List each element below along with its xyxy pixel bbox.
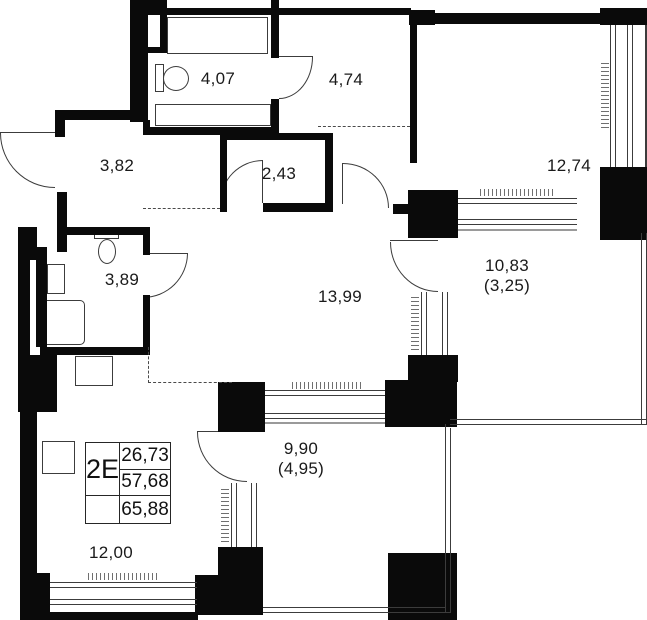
window-line: [236, 483, 237, 547]
window-line: [265, 395, 385, 396]
floor-plan: 4,07 4,74 12,74 3,82 2,43 3,89 13,99 10,…: [0, 0, 647, 620]
window-line: [615, 25, 616, 167]
room-label-entry-hall: 3,82: [100, 156, 134, 176]
wall-segment: [325, 133, 333, 212]
window-line: [447, 292, 448, 355]
window-line: [265, 413, 385, 414]
wall-segment: [385, 380, 457, 427]
wall-segment: [410, 13, 417, 163]
toilet-bowl: [163, 66, 189, 91]
door-swing-arc: [279, 57, 313, 99]
wall-segment: [143, 295, 150, 355]
loggia-glazing-line: [450, 428, 451, 613]
wall-segment: [20, 412, 37, 620]
wall-segment: [57, 227, 150, 235]
room-label-bathroom: 4,07: [201, 69, 235, 89]
radiator-hatch: [221, 489, 229, 545]
loggia-small-secondary: (4,95): [278, 459, 324, 478]
window-line: [426, 292, 427, 355]
window-sill-line: [265, 422, 385, 424]
loggia-glazing-line: [263, 612, 451, 613]
window-line: [458, 203, 577, 204]
room-label-kitchen-living: 13,99: [318, 287, 362, 307]
window-line: [50, 587, 197, 588]
wall-segment: [143, 120, 150, 135]
radiator-hatch: [480, 189, 553, 196]
wall-segment: [37, 612, 198, 620]
toilet-tank: [155, 64, 164, 92]
radiator-hatch: [411, 297, 419, 352]
wall-segment: [150, 8, 411, 15]
window-line: [632, 25, 633, 167]
wall-segment: [195, 575, 263, 615]
wall-segment: [408, 190, 458, 238]
zone-boundary-dashed: [318, 126, 410, 127]
radiator-hatch: [292, 382, 362, 389]
wall-segment: [36, 247, 47, 347]
door-swing-arc: [0, 133, 55, 188]
zone-boundary-dashed: [148, 382, 232, 383]
door-swing-arc: [197, 432, 247, 482]
loggia-large-area: 10,83: [485, 256, 529, 275]
door-leaf: [390, 240, 438, 241]
wall-segment: [143, 235, 150, 255]
wall-segment: [600, 167, 647, 240]
floor-area-value: 57,68: [119, 470, 170, 497]
room-label-living-room: 12,00: [89, 543, 133, 563]
wall-segment: [130, 0, 167, 15]
info-box-empty-cell: [86, 496, 119, 523]
wall-segment: [600, 8, 647, 25]
window-line: [265, 418, 385, 419]
radiator-hatch: [88, 573, 158, 580]
window-line: [231, 483, 232, 547]
door-leaf: [342, 163, 343, 204]
wall-segment: [143, 127, 279, 135]
apartment-info-box: 2Е 26,73 57,68 65,88: [85, 442, 171, 524]
window-line: [442, 292, 443, 355]
wall-segment: [55, 110, 132, 120]
window-sill-line: [458, 229, 577, 231]
room-label-corridor: 2,43: [262, 164, 296, 184]
loggia-glazing-line: [641, 233, 642, 424]
room-label-wc: 3,89: [105, 270, 139, 290]
wall-segment: [57, 192, 67, 252]
wall-segment: [218, 547, 263, 577]
loggia-glazing-line: [450, 419, 646, 420]
window-line: [265, 390, 385, 391]
window-line: [627, 25, 628, 167]
wall-segment: [160, 15, 167, 52]
wc-toilet-bowl: [98, 239, 116, 264]
loggia-glazing-line: [450, 424, 647, 425]
wall-segment: [18, 260, 30, 412]
radiator-hatch: [601, 63, 609, 131]
room-label-bedroom: 12,74: [547, 156, 591, 176]
wall-segment: [263, 203, 333, 212]
window-line: [458, 224, 577, 225]
room-label-loggia-large: 10,83(3,25): [484, 256, 530, 296]
window-line: [610, 25, 611, 167]
loggia-glazing-line: [263, 607, 446, 608]
bathtub: [167, 17, 268, 54]
wall-segment: [40, 347, 150, 355]
door-swing-arc: [143, 253, 188, 298]
loggia-large-secondary: (3,25): [484, 276, 530, 295]
wall-segment: [220, 133, 227, 212]
zone-boundary-dashed: [143, 208, 220, 209]
door-leaf: [279, 56, 313, 57]
wall-segment: [388, 553, 457, 620]
window-line: [50, 599, 197, 600]
door-swing-arc: [390, 242, 438, 292]
unit-type-label: 2Е: [86, 443, 119, 496]
window-line: [50, 604, 197, 605]
loggia-small-area: 9,90: [284, 439, 318, 458]
stove: [75, 356, 113, 386]
wall-segment: [409, 10, 435, 25]
vanity-counter: [155, 104, 271, 126]
window-line: [251, 483, 252, 547]
zone-boundary-dashed: [148, 347, 149, 383]
window-line: [458, 219, 577, 220]
room-label-hallway: 4,74: [329, 70, 363, 90]
wall-segment: [433, 13, 603, 24]
window-line: [421, 292, 422, 355]
window-line: [256, 483, 257, 547]
wall-segment: [30, 355, 57, 412]
door-leaf: [0, 132, 55, 133]
room-label-loggia-small: 9,90(4,95): [278, 439, 324, 479]
window-line: [50, 582, 197, 583]
wall-segment: [393, 204, 409, 214]
door-swing-arc: [343, 163, 389, 208]
window-line: [458, 198, 577, 199]
wall-segment: [218, 382, 265, 432]
kitchen-sink: [42, 441, 75, 474]
wall-segment: [18, 227, 37, 260]
wc-sink: [47, 264, 65, 294]
wall-segment: [130, 0, 148, 122]
total-area-value: 65,88: [119, 496, 170, 523]
loggia-glazing-line: [445, 424, 446, 613]
washing-machine: [42, 300, 85, 345]
wall-segment: [408, 355, 458, 382]
living-area-value: 26,73: [119, 443, 170, 470]
